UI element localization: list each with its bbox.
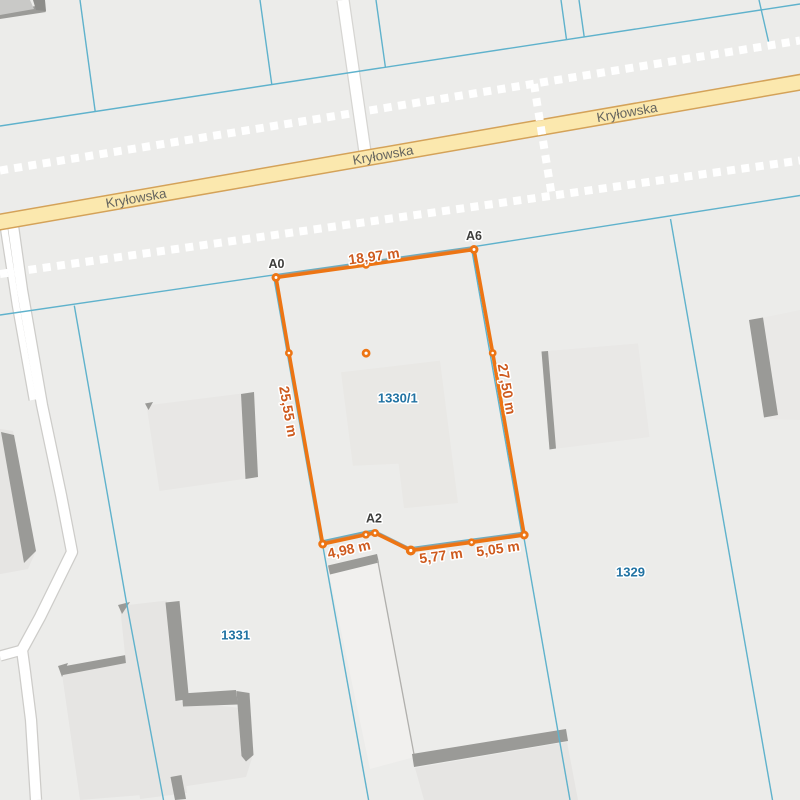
svg-text:1330/1: 1330/1 xyxy=(378,391,418,406)
svg-text:A2: A2 xyxy=(366,512,382,526)
svg-text:A6: A6 xyxy=(466,229,482,243)
svg-text:1329: 1329 xyxy=(616,565,645,580)
svg-text:A0: A0 xyxy=(269,257,285,271)
svg-text:1331: 1331 xyxy=(221,628,250,643)
